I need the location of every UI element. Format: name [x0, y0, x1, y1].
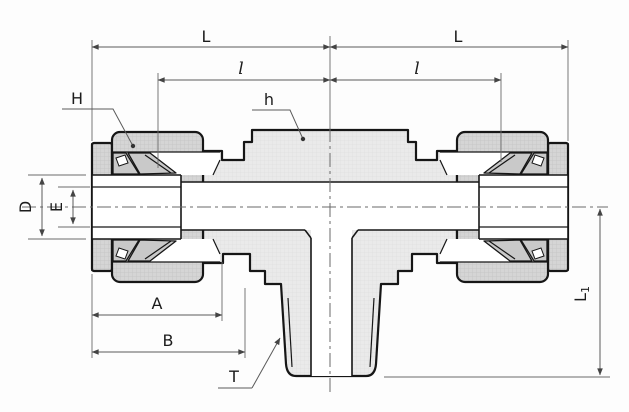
dim-label-A: A [152, 294, 163, 313]
dim-label-l-right: l [414, 59, 419, 79]
dim-label-T: T [228, 367, 239, 386]
dimension-D: D [16, 178, 42, 236]
dim-label-H: H [71, 89, 83, 108]
dim-label-h: h [264, 90, 274, 109]
dim-label-L-right: L [454, 27, 463, 46]
dimension-L1: L1 [571, 209, 600, 375]
technical-drawing-page: L L l l D E A B L1 H h [0, 0, 629, 412]
dimension-A: A [92, 294, 222, 315]
dimension-B: B [92, 331, 245, 352]
dimension-L-right: L [330, 27, 568, 47]
dimension-l-left: l [158, 59, 330, 80]
callout-T: T [218, 338, 280, 388]
leader-dot-h [301, 137, 305, 141]
dimension-L-left: L [92, 27, 330, 47]
dim-label-l-left: l [238, 59, 243, 79]
dim-label-E: E [47, 202, 66, 212]
dim-label-D: D [16, 201, 35, 213]
dimension-l-right: l [330, 59, 501, 80]
tee-fitting-drawing: L L l l D E A B L1 H h [0, 0, 629, 412]
dim-label-B: B [163, 331, 174, 350]
dimension-E: E [47, 190, 73, 224]
leader-dot-H [131, 144, 135, 148]
dim-label-L-left: L [202, 27, 211, 46]
dim-label-L1: L1 [571, 286, 592, 302]
